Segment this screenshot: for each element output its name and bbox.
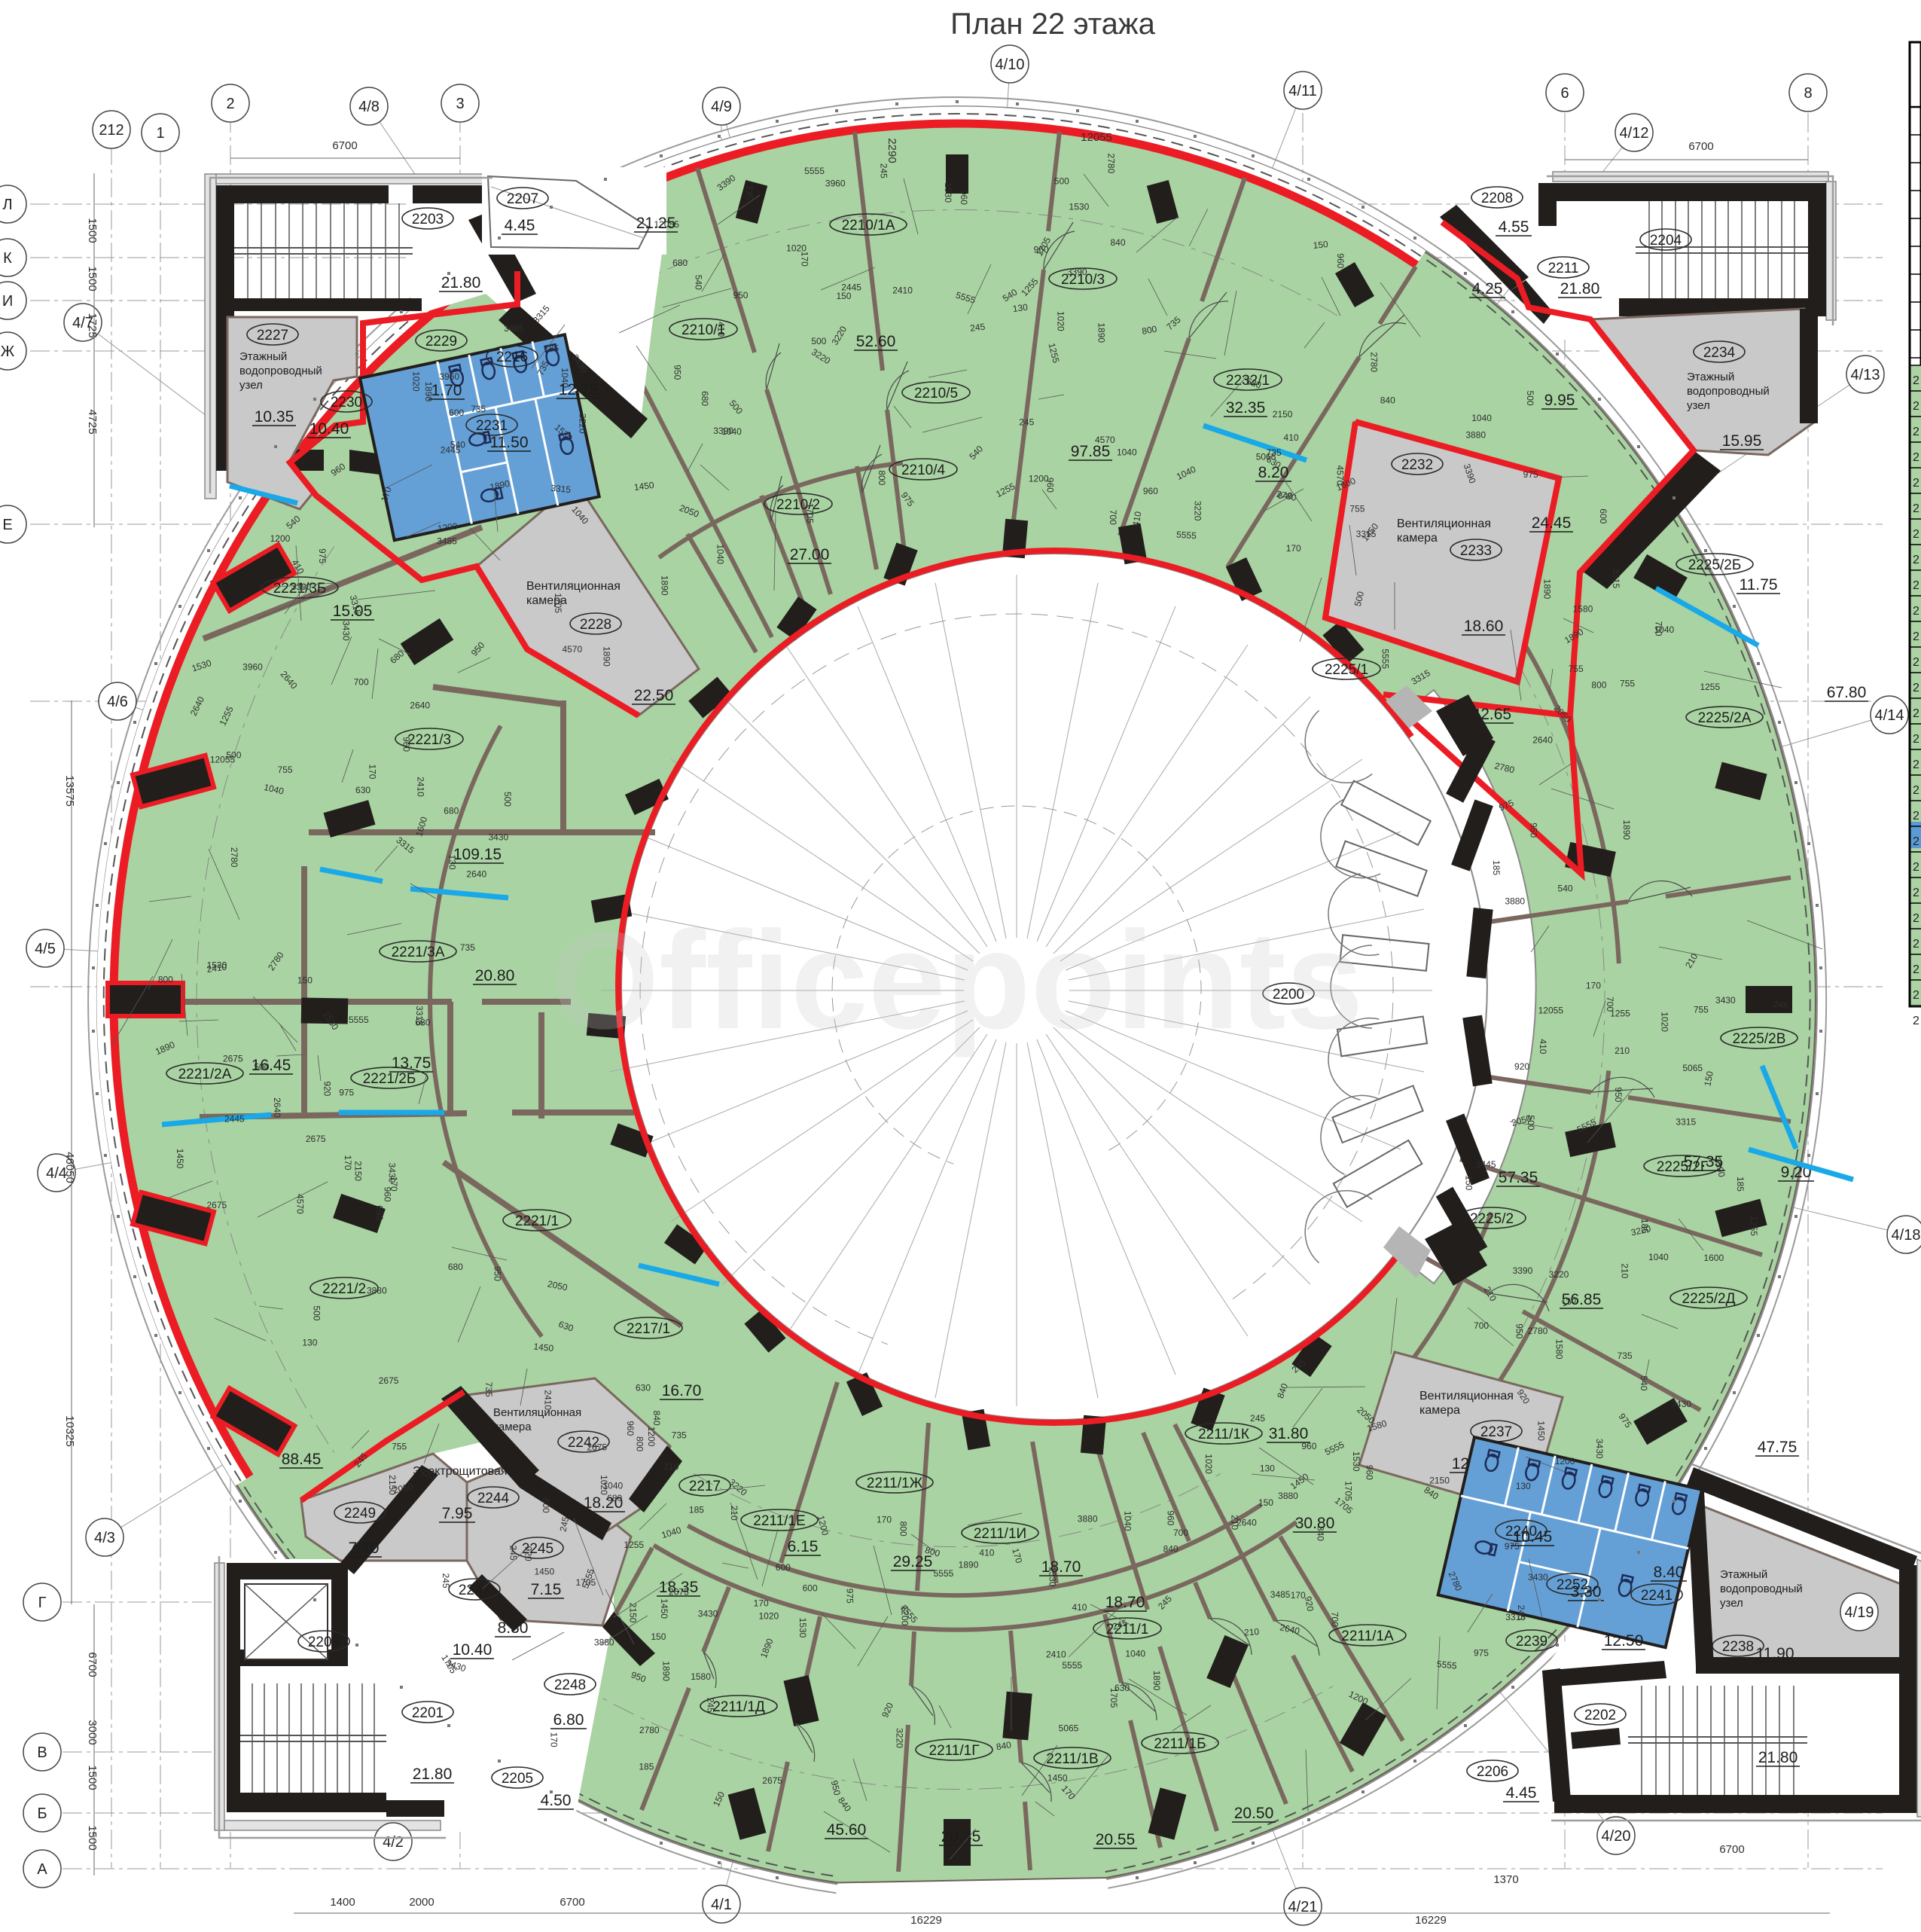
svg-text:1040: 1040 xyxy=(1125,1649,1145,1659)
svg-text:К: К xyxy=(3,250,12,267)
svg-text:1500: 1500 xyxy=(86,266,99,291)
svg-text:6700: 6700 xyxy=(1688,140,1713,153)
svg-text:6700: 6700 xyxy=(560,1896,584,1909)
svg-text:6700: 6700 xyxy=(1719,1843,1744,1856)
svg-text:2211/1В: 2211/1В xyxy=(1046,1751,1098,1767)
svg-text:2230: 2230 xyxy=(331,395,362,411)
svg-text:Этажный: Этажный xyxy=(1720,1568,1767,1581)
svg-text:2221/2Б: 2221/2Б xyxy=(363,1071,416,1087)
svg-text:920: 920 xyxy=(523,1546,533,1561)
svg-text:210: 210 xyxy=(1230,1515,1240,1530)
svg-text:3.30: 3.30 xyxy=(1571,1583,1602,1601)
svg-text:4/14: 4/14 xyxy=(1875,707,1904,724)
svg-text:2229: 2229 xyxy=(425,334,457,349)
svg-text:130: 130 xyxy=(302,1337,317,1348)
svg-text:10325: 10325 xyxy=(63,1415,76,1447)
svg-text:3315: 3315 xyxy=(550,483,572,495)
svg-text:46050: 46050 xyxy=(63,1152,76,1183)
svg-text:1200: 1200 xyxy=(646,1427,657,1447)
svg-text:План 22 этажа: План 22 этажа xyxy=(950,8,1156,41)
svg-text:2205: 2205 xyxy=(502,1771,533,1787)
svg-text:2211: 2211 xyxy=(1548,261,1579,276)
svg-text:1890: 1890 xyxy=(659,575,669,596)
svg-text:16229: 16229 xyxy=(910,1914,942,1927)
svg-text:410: 410 xyxy=(1072,1602,1087,1613)
svg-text:500: 500 xyxy=(811,336,826,346)
svg-text:2: 2 xyxy=(1913,784,1919,797)
svg-text:1370: 1370 xyxy=(1493,1873,1518,1886)
svg-text:Этажный: Этажный xyxy=(1687,371,1734,383)
svg-text:15.95: 15.95 xyxy=(1722,432,1762,450)
svg-text:5555: 5555 xyxy=(1062,1660,1082,1671)
svg-text:2244: 2244 xyxy=(477,1491,510,1506)
svg-text:500: 500 xyxy=(1525,391,1535,406)
svg-text:11.90: 11.90 xyxy=(1756,1645,1794,1662)
svg-text:2: 2 xyxy=(1913,502,1919,515)
svg-text:2675: 2675 xyxy=(223,1053,243,1064)
svg-text:3220: 3220 xyxy=(1192,501,1203,521)
svg-text:2: 2 xyxy=(1913,656,1919,669)
svg-text:410: 410 xyxy=(979,1548,994,1558)
svg-text:7.70: 7.70 xyxy=(349,1540,380,1557)
svg-text:2211/1Г: 2211/1Г xyxy=(929,1743,980,1759)
svg-text:2: 2 xyxy=(1913,528,1919,541)
svg-text:4570: 4570 xyxy=(1095,435,1115,445)
svg-text:6.80: 6.80 xyxy=(553,1711,584,1729)
svg-text:2234: 2234 xyxy=(1703,345,1736,361)
svg-text:1255: 1255 xyxy=(1700,682,1720,692)
svg-text:2675: 2675 xyxy=(306,1134,326,1144)
svg-text:960: 960 xyxy=(401,737,411,752)
svg-text:2410: 2410 xyxy=(892,285,913,295)
svg-text:1450: 1450 xyxy=(659,1598,669,1619)
svg-text:4/12: 4/12 xyxy=(1620,125,1649,142)
svg-text:2239: 2239 xyxy=(1516,1634,1547,1650)
svg-text:2780: 2780 xyxy=(1528,1326,1548,1336)
svg-text:3960: 3960 xyxy=(825,178,846,188)
svg-text:840: 840 xyxy=(1163,1544,1179,1555)
svg-text:4/2: 4/2 xyxy=(383,1834,404,1851)
svg-text:1: 1 xyxy=(156,125,164,142)
svg-text:узел: узел xyxy=(1687,399,1710,412)
svg-text:1040: 1040 xyxy=(1117,447,1137,457)
svg-text:3430: 3430 xyxy=(340,621,351,641)
svg-text:1500: 1500 xyxy=(86,1765,99,1790)
svg-text:2780: 2780 xyxy=(1369,352,1380,372)
svg-text:1500: 1500 xyxy=(86,218,99,243)
svg-text:5555: 5555 xyxy=(349,1015,369,1025)
svg-text:1450: 1450 xyxy=(1535,1421,1546,1441)
svg-text:1255: 1255 xyxy=(624,1540,644,1550)
svg-text:16.70: 16.70 xyxy=(662,1382,702,1399)
svg-text:170: 170 xyxy=(343,1155,353,1170)
svg-text:водопроводный: водопроводный xyxy=(1687,385,1770,398)
svg-text:735: 735 xyxy=(483,1382,494,1397)
svg-text:2: 2 xyxy=(1913,912,1919,925)
svg-text:185: 185 xyxy=(639,1761,654,1772)
svg-text:1040: 1040 xyxy=(1648,1252,1669,1262)
svg-text:4725: 4725 xyxy=(86,409,99,434)
svg-text:4/19: 4/19 xyxy=(1845,1604,1874,1621)
svg-text:680: 680 xyxy=(607,1493,622,1503)
svg-text:680: 680 xyxy=(448,1262,463,1272)
svg-text:210: 210 xyxy=(1615,1045,1630,1056)
svg-text:1450: 1450 xyxy=(1047,1772,1068,1783)
svg-text:2: 2 xyxy=(1913,426,1919,438)
svg-text:1580: 1580 xyxy=(1573,603,1593,614)
svg-text:1580: 1580 xyxy=(1554,1339,1564,1360)
svg-text:2: 2 xyxy=(1913,579,1919,592)
svg-text:1500: 1500 xyxy=(86,1825,99,1850)
svg-text:2445: 2445 xyxy=(841,282,861,293)
svg-text:245: 245 xyxy=(1019,417,1034,428)
svg-text:1450: 1450 xyxy=(534,1566,554,1576)
svg-text:2: 2 xyxy=(1913,1015,1919,1027)
svg-text:Officepoints: Officepoints xyxy=(550,903,1363,1058)
svg-text:600: 600 xyxy=(776,1562,791,1573)
svg-text:2211/1Д: 2211/1Д xyxy=(712,1699,765,1715)
svg-text:150: 150 xyxy=(1313,239,1329,251)
svg-text:2: 2 xyxy=(1913,989,1919,1002)
svg-text:5065: 5065 xyxy=(1059,1723,1079,1734)
svg-text:2: 2 xyxy=(1913,682,1919,694)
svg-text:4/1: 4/1 xyxy=(711,1897,732,1913)
svg-text:2150: 2150 xyxy=(1429,1476,1450,1486)
svg-text:2227: 2227 xyxy=(257,328,288,343)
svg-text:2445: 2445 xyxy=(224,1113,245,1124)
svg-text:2225/2А: 2225/2А xyxy=(1698,710,1752,726)
svg-text:2: 2 xyxy=(1913,861,1919,874)
svg-text:2640: 2640 xyxy=(1532,734,1553,745)
svg-text:500: 500 xyxy=(1054,175,1069,186)
svg-text:800: 800 xyxy=(898,1521,909,1537)
svg-text:540: 540 xyxy=(1639,1375,1649,1390)
svg-text:2206: 2206 xyxy=(1477,1764,1508,1780)
svg-text:2209: 2209 xyxy=(308,1634,340,1650)
svg-text:2225/1: 2225/1 xyxy=(1325,662,1368,678)
svg-text:630: 630 xyxy=(1114,1683,1130,1693)
svg-text:1040: 1040 xyxy=(1123,1511,1133,1531)
svg-text:67.80: 67.80 xyxy=(1827,684,1867,701)
svg-text:Этажный: Этажный xyxy=(239,350,287,363)
svg-text:3960: 3960 xyxy=(242,661,263,672)
svg-text:1580: 1580 xyxy=(691,1671,711,1682)
svg-text:3390: 3390 xyxy=(291,581,312,592)
svg-text:6.15: 6.15 xyxy=(788,1538,819,1555)
svg-text:2445: 2445 xyxy=(1476,1159,1496,1170)
svg-text:3880: 3880 xyxy=(1465,429,1486,440)
svg-text:1890: 1890 xyxy=(959,1560,979,1570)
svg-text:3430: 3430 xyxy=(1594,1439,1605,1459)
svg-text:735: 735 xyxy=(744,185,755,200)
svg-text:3485: 3485 xyxy=(1270,1589,1291,1600)
svg-text:Вентиляционная: Вентиляционная xyxy=(1419,1390,1514,1402)
svg-text:1020: 1020 xyxy=(1659,1012,1669,1032)
svg-text:975: 975 xyxy=(1523,469,1538,480)
svg-text:Ж: Ж xyxy=(1,343,15,360)
svg-text:800: 800 xyxy=(634,1436,645,1451)
svg-text:735: 735 xyxy=(471,404,486,414)
svg-text:57.35: 57.35 xyxy=(1499,1169,1538,1186)
svg-text:45.60: 45.60 xyxy=(827,1821,867,1839)
svg-text:700: 700 xyxy=(1474,1320,1489,1331)
svg-text:3960: 3960 xyxy=(439,371,459,382)
svg-text:2: 2 xyxy=(1913,733,1919,746)
svg-text:245: 245 xyxy=(705,1698,715,1713)
svg-text:Л: Л xyxy=(2,197,12,213)
svg-text:185: 185 xyxy=(689,1505,704,1515)
svg-text:В: В xyxy=(37,1744,47,1761)
svg-text:32.35: 32.35 xyxy=(1226,399,1266,417)
svg-text:2221/2: 2221/2 xyxy=(322,1281,366,1297)
svg-text:755: 755 xyxy=(392,1441,407,1451)
svg-text:И: И xyxy=(2,293,13,310)
svg-text:10.40: 10.40 xyxy=(453,1641,492,1659)
svg-text:1020: 1020 xyxy=(1203,1454,1214,1474)
svg-text:630: 630 xyxy=(636,1382,651,1393)
svg-text:3430: 3430 xyxy=(1715,995,1736,1006)
svg-text:1020: 1020 xyxy=(411,371,422,392)
svg-text:2675: 2675 xyxy=(587,1442,607,1453)
svg-text:245: 245 xyxy=(969,321,986,333)
svg-text:410: 410 xyxy=(1538,1039,1548,1054)
svg-text:2: 2 xyxy=(1913,400,1919,413)
svg-text:950: 950 xyxy=(1514,1323,1524,1338)
svg-text:840: 840 xyxy=(1278,490,1294,501)
svg-text:3390: 3390 xyxy=(1513,1265,1533,1276)
svg-text:2290: 2290 xyxy=(886,138,898,163)
svg-text:130: 130 xyxy=(1516,1481,1531,1491)
svg-text:212: 212 xyxy=(99,122,123,139)
svg-text:2: 2 xyxy=(1913,374,1919,387)
svg-text:21.80: 21.80 xyxy=(1560,280,1600,298)
svg-text:500: 500 xyxy=(311,1305,322,1320)
svg-text:3315: 3315 xyxy=(1676,1117,1696,1128)
svg-text:24.45: 24.45 xyxy=(1532,514,1572,532)
svg-text:210: 210 xyxy=(1619,1263,1630,1278)
svg-text:245: 245 xyxy=(878,163,889,179)
svg-text:4/6: 4/6 xyxy=(107,694,128,710)
svg-text:210: 210 xyxy=(1244,1626,1260,1638)
svg-text:12055: 12055 xyxy=(210,754,236,765)
svg-text:700: 700 xyxy=(1108,510,1118,525)
svg-text:2241: 2241 xyxy=(1641,1588,1672,1604)
svg-text:5555: 5555 xyxy=(804,166,825,176)
svg-text:700: 700 xyxy=(1329,1612,1340,1627)
svg-text:Е: Е xyxy=(2,517,12,533)
svg-text:10.40: 10.40 xyxy=(309,420,349,438)
svg-text:12.50: 12.50 xyxy=(1604,1632,1644,1650)
svg-text:6700: 6700 xyxy=(86,1652,99,1677)
svg-text:20.50: 20.50 xyxy=(1234,1805,1274,1822)
svg-text:88.45: 88.45 xyxy=(282,1451,322,1468)
svg-text:600: 600 xyxy=(803,1583,818,1593)
svg-text:1530: 1530 xyxy=(943,182,953,203)
svg-text:3220: 3220 xyxy=(1549,1269,1569,1280)
svg-text:2203: 2203 xyxy=(412,212,444,227)
svg-text:12055: 12055 xyxy=(1081,131,1112,144)
svg-text:27.00: 27.00 xyxy=(790,546,830,563)
svg-text:2445: 2445 xyxy=(441,445,461,456)
svg-text:2247: 2247 xyxy=(459,1583,490,1598)
svg-text:11.50: 11.50 xyxy=(490,434,529,451)
svg-text:2201: 2201 xyxy=(412,1705,444,1721)
svg-text:3000: 3000 xyxy=(86,1720,99,1744)
svg-text:3: 3 xyxy=(456,96,464,112)
svg-text:4.45: 4.45 xyxy=(505,217,535,234)
svg-text:47.75: 47.75 xyxy=(1758,1439,1798,1456)
svg-text:5555: 5555 xyxy=(1380,649,1391,669)
svg-text:1530: 1530 xyxy=(1047,1567,1057,1587)
svg-text:12055: 12055 xyxy=(654,219,680,230)
svg-text:2675: 2675 xyxy=(206,1200,227,1210)
svg-text:600: 600 xyxy=(1598,508,1608,523)
svg-text:2210/1А: 2210/1А xyxy=(842,218,895,233)
svg-text:500: 500 xyxy=(1526,1116,1536,1131)
svg-text:2225/2В: 2225/2В xyxy=(1733,1031,1786,1047)
svg-text:975: 975 xyxy=(1505,1541,1520,1552)
svg-text:2: 2 xyxy=(1913,451,1919,464)
svg-text:130: 130 xyxy=(1260,1463,1275,1474)
svg-text:2780: 2780 xyxy=(229,847,239,868)
svg-text:11.75: 11.75 xyxy=(1740,576,1778,594)
svg-text:2675: 2675 xyxy=(379,1375,399,1386)
svg-text:1890: 1890 xyxy=(423,381,434,401)
svg-text:Б: Б xyxy=(37,1805,47,1822)
svg-text:755: 755 xyxy=(1620,679,1635,689)
svg-text:1450: 1450 xyxy=(533,1341,554,1354)
svg-text:735: 735 xyxy=(1617,1351,1632,1361)
svg-text:950: 950 xyxy=(672,365,682,380)
svg-text:3315: 3315 xyxy=(1611,568,1621,588)
svg-text:4.25: 4.25 xyxy=(1472,280,1503,298)
svg-text:8.30: 8.30 xyxy=(498,1619,529,1637)
svg-text:21.80: 21.80 xyxy=(1758,1749,1798,1766)
svg-text:960: 960 xyxy=(1166,1510,1176,1525)
svg-text:3430: 3430 xyxy=(698,1608,718,1619)
svg-text:800: 800 xyxy=(1591,680,1606,691)
svg-text:29.25: 29.25 xyxy=(893,1553,933,1570)
svg-text:2211/1Е: 2211/1Е xyxy=(753,1513,805,1529)
svg-text:2211/1Ж: 2211/1Ж xyxy=(867,1476,923,1491)
svg-text:245: 245 xyxy=(1773,999,1789,1011)
svg-text:2150: 2150 xyxy=(627,1603,638,1623)
svg-text:2640: 2640 xyxy=(466,869,486,880)
svg-text:3485: 3485 xyxy=(437,536,457,546)
svg-text:2238: 2238 xyxy=(1722,1639,1754,1655)
svg-text:245: 245 xyxy=(508,1546,519,1561)
svg-text:1200: 1200 xyxy=(270,533,291,544)
svg-text:2202: 2202 xyxy=(1584,1708,1616,1723)
svg-text:4/3: 4/3 xyxy=(94,1530,115,1546)
svg-text:540: 540 xyxy=(694,275,704,290)
svg-text:3430: 3430 xyxy=(387,1163,398,1183)
svg-text:3880: 3880 xyxy=(1505,896,1525,907)
svg-text:4.55: 4.55 xyxy=(1499,218,1529,236)
svg-text:4/5: 4/5 xyxy=(35,941,56,957)
svg-text:700: 700 xyxy=(1173,1528,1188,1538)
svg-text:2208: 2208 xyxy=(1481,191,1513,206)
svg-text:2: 2 xyxy=(1913,630,1919,643)
svg-text:3220: 3220 xyxy=(578,414,588,434)
svg-text:680: 680 xyxy=(374,1205,385,1220)
svg-text:2207: 2207 xyxy=(507,191,538,207)
svg-text:2780: 2780 xyxy=(1105,154,1116,174)
svg-text:5065: 5065 xyxy=(1682,1063,1703,1073)
svg-text:960: 960 xyxy=(1143,486,1158,496)
svg-text:1890: 1890 xyxy=(1542,579,1553,600)
svg-text:4/18: 4/18 xyxy=(1892,1227,1921,1244)
svg-text:245: 245 xyxy=(441,1573,451,1589)
svg-text:1890: 1890 xyxy=(660,1661,671,1681)
svg-text:1020: 1020 xyxy=(1056,311,1066,331)
svg-text:245: 245 xyxy=(1250,1413,1265,1424)
svg-text:2217/1: 2217/1 xyxy=(627,1321,670,1337)
svg-text:2231: 2231 xyxy=(476,418,508,434)
svg-text:170: 170 xyxy=(754,1598,769,1608)
svg-text:170: 170 xyxy=(1286,543,1301,554)
svg-text:5065: 5065 xyxy=(1256,452,1276,462)
svg-text:1450: 1450 xyxy=(175,1149,185,1169)
svg-text:водопроводный: водопроводный xyxy=(1720,1583,1803,1595)
svg-text:2675: 2675 xyxy=(762,1775,782,1786)
svg-text:8: 8 xyxy=(1804,85,1812,102)
svg-text:960: 960 xyxy=(1364,1465,1374,1480)
svg-text:водопроводный: водопроводный xyxy=(239,365,322,377)
svg-text:2210/5: 2210/5 xyxy=(914,386,958,401)
svg-text:22.50: 22.50 xyxy=(634,687,674,704)
svg-text:1705: 1705 xyxy=(804,503,815,523)
svg-text:960: 960 xyxy=(959,190,969,205)
svg-text:1200: 1200 xyxy=(899,1606,910,1626)
svg-text:4.50: 4.50 xyxy=(541,1792,572,1809)
svg-text:735: 735 xyxy=(460,942,475,953)
svg-text:1020: 1020 xyxy=(786,243,807,253)
svg-text:3430: 3430 xyxy=(488,832,508,842)
svg-text:97.85: 97.85 xyxy=(1071,443,1111,460)
svg-text:975: 975 xyxy=(317,548,328,563)
svg-text:840: 840 xyxy=(1316,1526,1326,1541)
svg-text:185: 185 xyxy=(1735,1177,1746,1192)
svg-text:2211/1И: 2211/1И xyxy=(974,1526,1026,1542)
svg-text:2249: 2249 xyxy=(344,1506,376,1521)
svg-text:680: 680 xyxy=(700,391,710,406)
svg-text:3220: 3220 xyxy=(895,1728,905,1748)
svg-text:7.15: 7.15 xyxy=(531,1581,562,1598)
svg-text:2: 2 xyxy=(1913,605,1919,618)
svg-text:3315: 3315 xyxy=(414,1006,425,1026)
svg-text:170: 170 xyxy=(1291,1590,1306,1601)
svg-text:130: 130 xyxy=(447,855,458,870)
svg-text:5555: 5555 xyxy=(1176,530,1197,542)
svg-text:2221/3А: 2221/3А xyxy=(392,945,445,960)
svg-text:920: 920 xyxy=(1514,1061,1529,1072)
svg-text:2150: 2150 xyxy=(352,1161,363,1181)
svg-text:4570: 4570 xyxy=(295,1194,306,1214)
svg-text:Г: Г xyxy=(38,1595,47,1611)
svg-text:950: 950 xyxy=(1529,823,1539,838)
svg-text:150: 150 xyxy=(1258,1497,1273,1508)
svg-text:1040: 1040 xyxy=(602,1480,623,1491)
svg-text:840: 840 xyxy=(651,1411,662,1426)
svg-text:680: 680 xyxy=(672,258,688,268)
svg-text:109.15: 109.15 xyxy=(453,846,502,863)
svg-text:800: 800 xyxy=(158,975,173,985)
svg-text:2: 2 xyxy=(1913,835,1919,848)
svg-text:4/10: 4/10 xyxy=(996,56,1025,73)
svg-text:3880: 3880 xyxy=(1278,1491,1298,1501)
svg-text:1705: 1705 xyxy=(553,593,563,613)
